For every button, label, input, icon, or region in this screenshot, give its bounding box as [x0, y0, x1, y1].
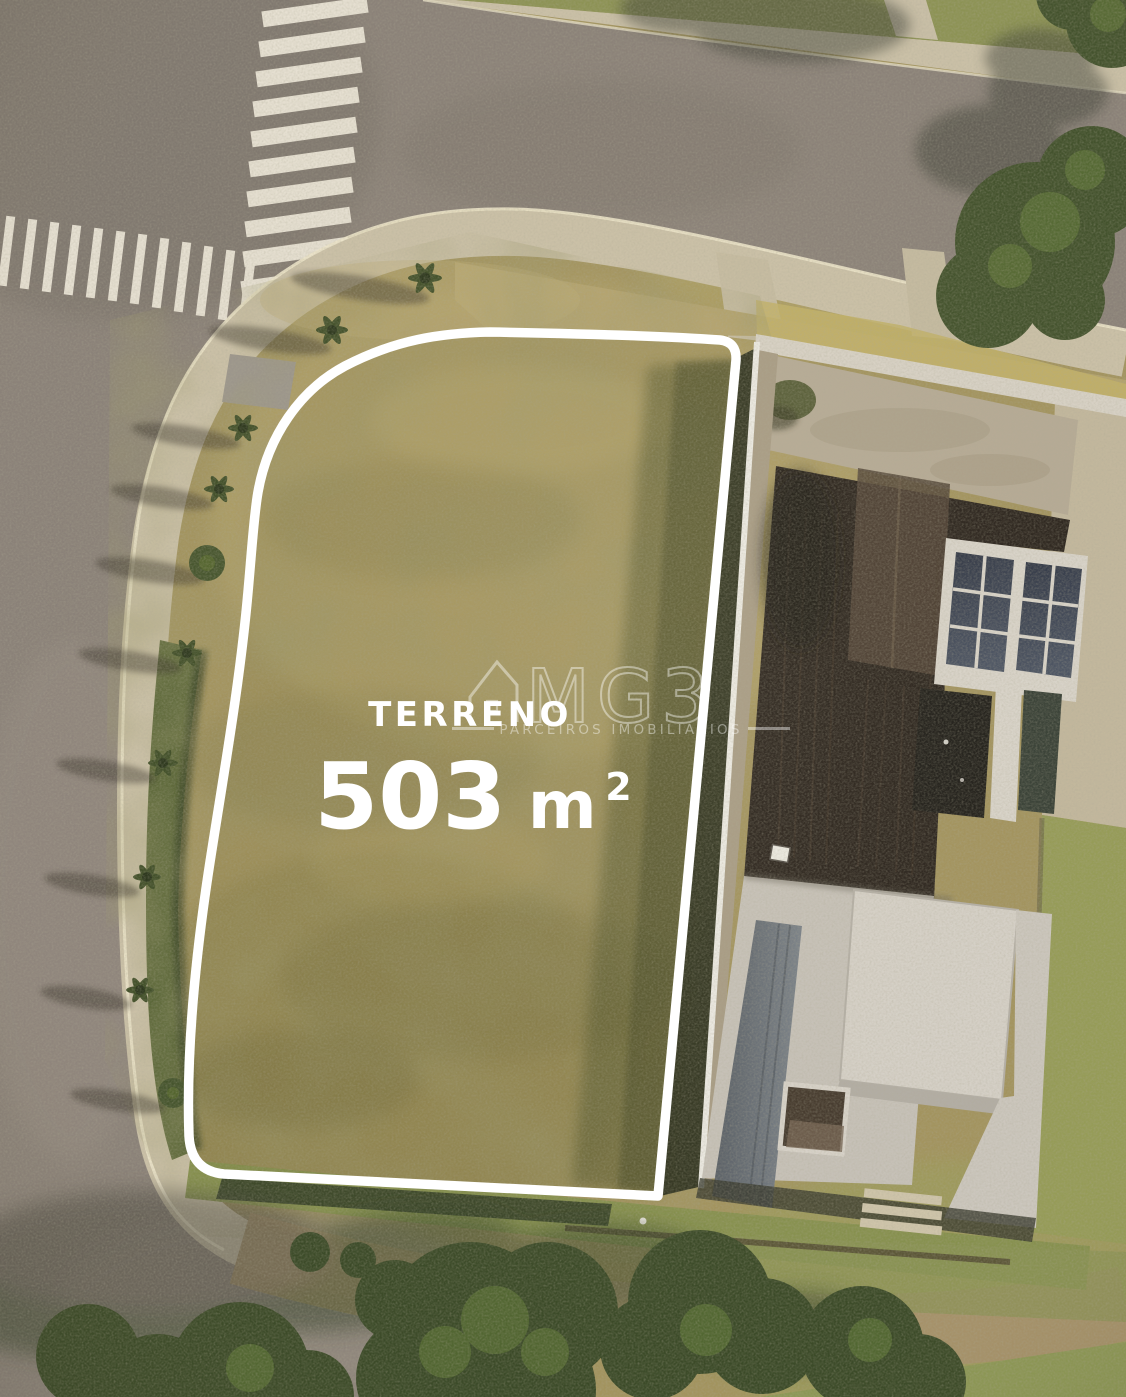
terreno-label: TERRENO — [368, 695, 572, 735]
area-unit: m — [528, 767, 597, 844]
area-number: 503 — [314, 743, 506, 850]
area-exponent: 2 — [605, 765, 631, 809]
aerial-scene: MG3 PARCEIROS IMOBILIÁRIOS TERRENO 503 m… — [0, 0, 1126, 1397]
tagline-rule-right — [748, 727, 790, 730]
aerial-photo: MG3 PARCEIROS IMOBILIÁRIOS TERRENO 503 m… — [0, 0, 1126, 1397]
